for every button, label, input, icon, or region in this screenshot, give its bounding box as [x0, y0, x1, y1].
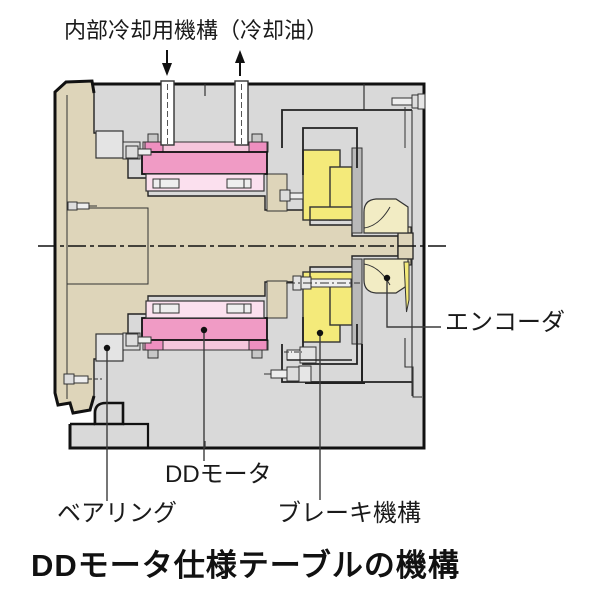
encoder-disc [364, 199, 408, 233]
label-bearing: ベアリング [57, 501, 177, 527]
label-dd-motor: DDモータ [165, 462, 272, 488]
figure-title: DDモータ仕様テーブルの機構 [31, 540, 460, 585]
coolant-in-arrow [162, 50, 172, 76]
label-internal-cooling: 内部冷却用機構（冷却油） [64, 19, 328, 43]
figure: 内部冷却用機構（冷却油） エンコーダ DDモータ ベアリング ブレーキ機構 DD… [0, 0, 600, 600]
label-brake: ブレーキ機構 [277, 501, 421, 527]
bearing-block [96, 131, 123, 158]
label-encoder: エンコーダ [445, 310, 565, 336]
dd-motor-rotor [146, 174, 264, 191]
coolant-out-arrow [235, 50, 245, 76]
